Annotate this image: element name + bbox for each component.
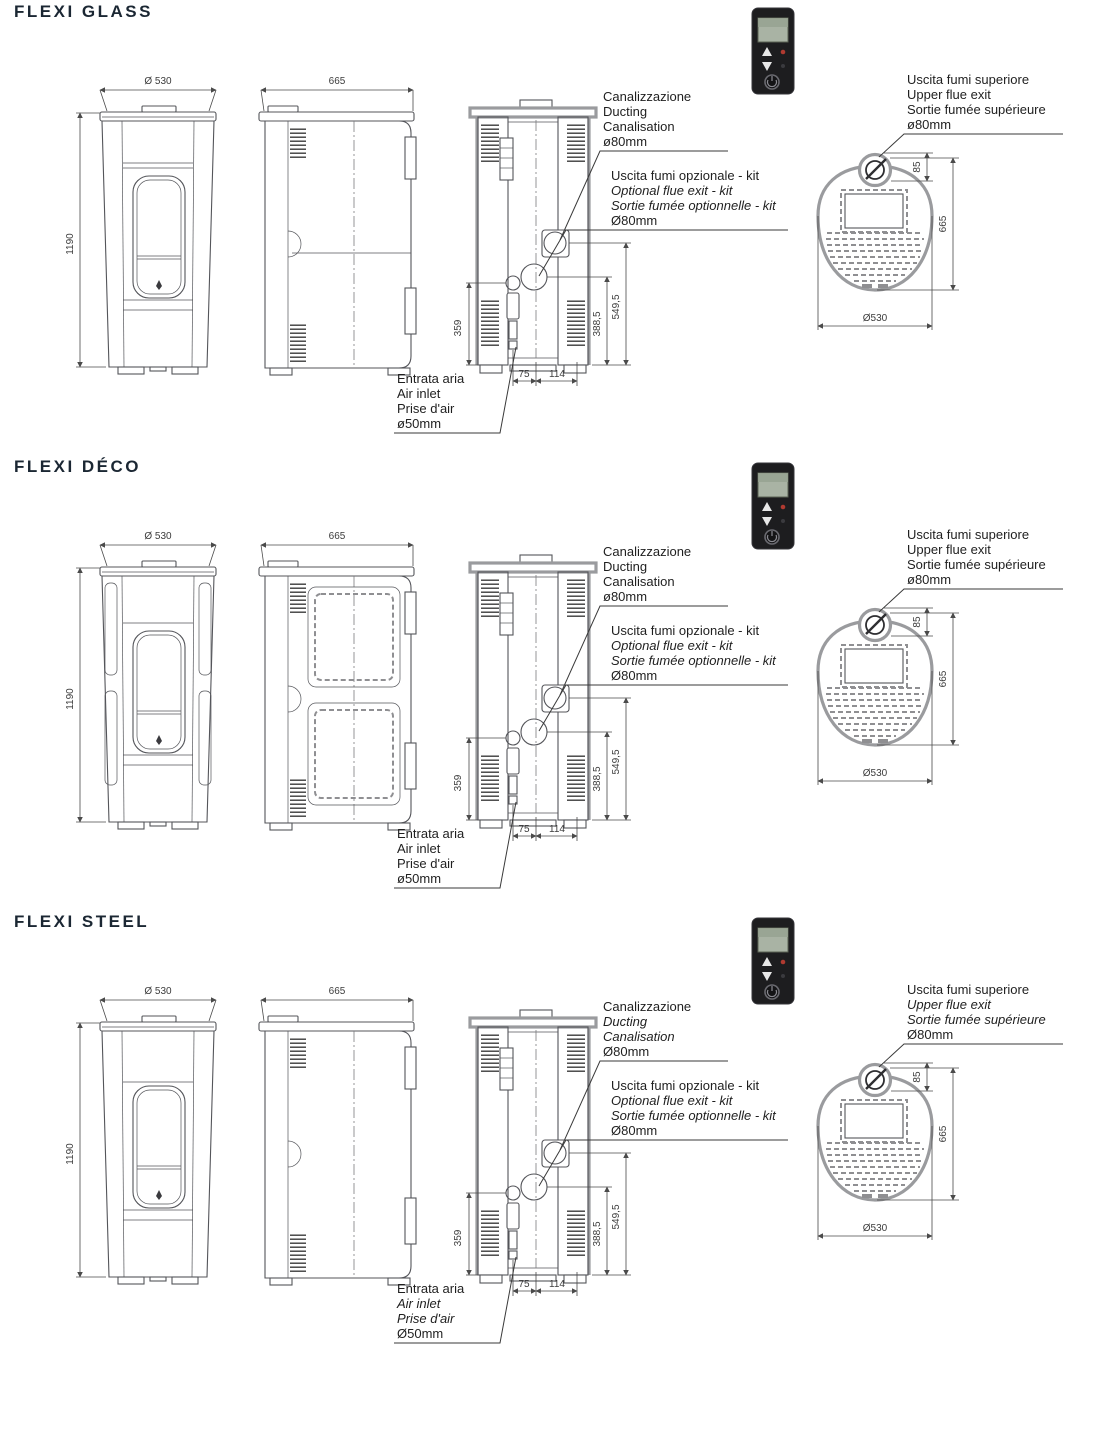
side-vent-grille-bottom bbox=[290, 324, 306, 362]
remote-control-image bbox=[752, 918, 794, 1004]
ducting-line-1: Canalizzazione bbox=[603, 544, 691, 559]
hopper-lid bbox=[845, 1104, 903, 1138]
upper-flue-leader-line bbox=[879, 589, 1063, 612]
back-vent-grille-bottom-left bbox=[481, 1208, 499, 1258]
air-inlet-diameter: ø50mm bbox=[397, 871, 441, 886]
back-dim-388: 388,5 bbox=[592, 311, 603, 336]
optional-flue-line-1: Uscita fumi opzionale - kit bbox=[611, 623, 759, 638]
air-inlet-line-3: Prise d'air bbox=[397, 401, 455, 416]
back-vent-grille-top-left bbox=[481, 1034, 499, 1074]
optional-flue-line-2: Optional flue exit - kit bbox=[611, 638, 734, 653]
front-view-drawing: Ø 530 1190 bbox=[65, 531, 216, 829]
upper-flue-line-1: Uscita fumi superiore bbox=[907, 527, 1029, 542]
back-dim-75: 75 bbox=[518, 824, 530, 835]
back-dim-359: 359 bbox=[453, 319, 464, 336]
front-view-drawing: Ø 530 1190 bbox=[65, 76, 216, 374]
air-inlet-line-1: Entrata aria bbox=[397, 1281, 465, 1296]
upper-flue-line-2: Upper flue exit bbox=[907, 87, 991, 102]
side-vent-grille-bottom bbox=[290, 779, 306, 817]
upper-flue-diameter: ø80mm bbox=[907, 117, 951, 132]
upper-flue-line-1: Uscita fumi superiore bbox=[907, 982, 1029, 997]
ducting-line-1: Canalizzazione bbox=[603, 999, 691, 1014]
ducting-line-2: Ducting bbox=[603, 104, 647, 119]
optional-flue-line-3: Sortie fumée optionnelle - kit bbox=[611, 1108, 777, 1123]
optional-flue-line-3: Sortie fumée optionnelle - kit bbox=[611, 653, 777, 668]
top-dim-85: 85 bbox=[912, 161, 923, 173]
optional-flue-diameter: Ø80mm bbox=[611, 668, 657, 683]
side-view-drawing: 665 bbox=[259, 76, 416, 375]
ducting-line-2: Ducting bbox=[603, 559, 647, 574]
back-dim-75: 75 bbox=[518, 1279, 530, 1290]
air-inlet-line-3: Prise d'air bbox=[397, 1311, 455, 1326]
back-dim-359: 359 bbox=[453, 1229, 464, 1246]
top-dim-530: Ø530 bbox=[863, 313, 888, 324]
optional-flue-line-2: Optional flue exit - kit bbox=[611, 183, 734, 198]
front-height-dim: 1190 bbox=[65, 688, 76, 710]
optional-flue-leader-line bbox=[539, 1140, 788, 1186]
air-inlet-line-2: Air inlet bbox=[397, 386, 441, 401]
upper-flue-line-2: Upper flue exit bbox=[907, 542, 991, 557]
annotation-upper-flue: Uscita fumi superiore Upper flue exit So… bbox=[879, 527, 1063, 612]
back-vent-grille-bottom-left bbox=[481, 753, 499, 803]
ducting-line-3: Canalisation bbox=[603, 1029, 675, 1044]
air-inlet-diameter: Ø50mm bbox=[397, 1326, 443, 1341]
back-vent-grille-bottom-right bbox=[567, 753, 585, 803]
back-vent-grille-top-right bbox=[567, 1034, 585, 1074]
optional-flue-diameter: Ø80mm bbox=[611, 213, 657, 228]
back-pipe-bracket bbox=[500, 1048, 513, 1090]
back-vent-grille-top-right bbox=[567, 579, 585, 619]
side-depth-dim: 665 bbox=[329, 986, 346, 997]
section-flexi-glass: FLEXI GLASS Ø 530 bbox=[0, 0, 1100, 452]
top-view-drawing: 85 665 Ø530 bbox=[818, 608, 959, 785]
air-inlet-line-1: Entrata aria bbox=[397, 826, 465, 841]
back-dim-388: 388,5 bbox=[592, 1221, 603, 1246]
side-depth-dim: 665 bbox=[329, 531, 346, 542]
remote-dark-button bbox=[781, 64, 785, 68]
section-flexi-deco: FLEXI DÉCO Ø 530 bbox=[0, 455, 1100, 907]
back-vent-grille-bottom-right bbox=[567, 298, 585, 348]
side-vent-grille-bottom bbox=[290, 1234, 306, 1272]
front-width-dim: Ø 530 bbox=[144, 986, 172, 997]
top-view-drawing: 85 665 Ø530 bbox=[818, 153, 959, 330]
remote-red-button bbox=[781, 960, 786, 965]
annotation-air-inlet: Entrata aria Air inlet Prise d'air ø50mm bbox=[394, 347, 516, 433]
datasheet-page: FLEXI GLASS Ø 530 bbox=[0, 0, 1100, 1452]
optional-flue-line-1: Uscita fumi opzionale - kit bbox=[611, 168, 759, 183]
hopper-lid bbox=[845, 194, 903, 228]
air-inlet-line-3: Prise d'air bbox=[397, 856, 455, 871]
upper-flue-line-3: Sortie fumée supérieure bbox=[907, 102, 1046, 117]
section-flexi-steel: FLEXI STEEL Ø 530 bbox=[0, 910, 1100, 1362]
top-dim-530: Ø530 bbox=[863, 1223, 888, 1234]
annotation-optional-flue: Uscita fumi opzionale - kit Optional flu… bbox=[539, 623, 788, 731]
annotation-upper-flue: Uscita fumi superiore Upper flue exit So… bbox=[879, 72, 1063, 157]
optional-flue-leader-line bbox=[539, 230, 788, 276]
upper-flue-line-3: Sortie fumée supérieure bbox=[907, 557, 1046, 572]
ducting-line-3: Canalisation bbox=[603, 574, 675, 589]
back-vent-grille-top-left bbox=[481, 124, 499, 164]
air-inlet-line-1: Entrata aria bbox=[397, 371, 465, 386]
optional-flue-line-2: Optional flue exit - kit bbox=[611, 1093, 734, 1108]
back-vent-grille-bottom-right bbox=[567, 1208, 585, 1258]
optional-flue-line-3: Sortie fumée optionnelle - kit bbox=[611, 198, 777, 213]
upper-flue-line-1: Uscita fumi superiore bbox=[907, 72, 1029, 87]
side-vent-grille-top bbox=[290, 1036, 306, 1070]
ducting-outlet bbox=[542, 230, 569, 257]
upper-flue-diameter: Ø80mm bbox=[907, 1027, 953, 1042]
upper-flue-diameter: ø80mm bbox=[907, 572, 951, 587]
air-inlet-line-2: Air inlet bbox=[396, 1296, 442, 1311]
back-dim-549: 549,5 bbox=[611, 749, 622, 774]
side-view-drawing: 665 bbox=[259, 986, 416, 1285]
back-dim-359: 359 bbox=[453, 774, 464, 791]
upper-flue-leader-line bbox=[879, 134, 1063, 157]
top-dim-665: 665 bbox=[938, 215, 949, 232]
back-dim-114: 114 bbox=[549, 824, 565, 835]
side-depth-dim: 665 bbox=[329, 76, 346, 87]
front-width-dim: Ø 530 bbox=[144, 76, 172, 87]
ducting-diameter: ø80mm bbox=[603, 134, 647, 149]
back-vent-grille-top-left bbox=[481, 579, 499, 619]
back-pipe-bracket bbox=[500, 138, 513, 180]
upper-flue-leader-line bbox=[879, 1044, 1063, 1067]
technical-drawing: Ø 530 1190 bbox=[0, 455, 1100, 907]
remote-dark-button bbox=[781, 519, 785, 523]
annotation-upper-flue: Uscita fumi superiore Upper flue exit So… bbox=[879, 982, 1063, 1067]
back-dim-549: 549,5 bbox=[611, 294, 622, 319]
top-dim-530: Ø530 bbox=[863, 768, 888, 779]
side-vent-grille-top bbox=[290, 126, 306, 160]
hopper-lid bbox=[845, 649, 903, 683]
back-vent-grille-top-right bbox=[567, 124, 585, 164]
air-inlet-diameter: ø50mm bbox=[397, 416, 441, 431]
remote-dark-button bbox=[781, 974, 785, 978]
optional-flue-outlet bbox=[521, 264, 547, 290]
top-dim-665: 665 bbox=[938, 670, 949, 687]
front-width-dim: Ø 530 bbox=[144, 531, 172, 542]
ducting-line-3: Canalisation bbox=[603, 119, 675, 134]
top-view-drawing: 85 665 Ø530 bbox=[818, 1063, 959, 1240]
annotation-air-inlet: Entrata aria Air inlet Prise d'air Ø50mm bbox=[394, 1257, 516, 1343]
side-vent-grille-top bbox=[290, 581, 306, 615]
ducting-outlet bbox=[542, 1140, 569, 1167]
upper-flue-line-3: Sortie fumée supérieure bbox=[907, 1012, 1046, 1027]
annotation-air-inlet: Entrata aria Air inlet Prise d'air ø50mm bbox=[394, 802, 516, 888]
optional-flue-outlet bbox=[521, 719, 547, 745]
back-dim-549: 549,5 bbox=[611, 1204, 622, 1229]
remote-control-image bbox=[752, 8, 794, 94]
ducting-diameter: ø80mm bbox=[603, 589, 647, 604]
remote-red-button bbox=[781, 50, 786, 55]
annotation-optional-flue: Uscita fumi opzionale - kit Optional flu… bbox=[539, 1078, 788, 1186]
front-height-dim: 1190 bbox=[65, 1143, 76, 1165]
upper-flue-line-2: Upper flue exit bbox=[907, 997, 992, 1012]
back-vent-grille-bottom-left bbox=[481, 298, 499, 348]
back-pipe-bracket bbox=[500, 593, 513, 635]
back-dim-114: 114 bbox=[549, 369, 565, 380]
air-inlet-pipe bbox=[507, 748, 519, 774]
ducting-line-1: Canalizzazione bbox=[603, 89, 691, 104]
optional-flue-line-1: Uscita fumi opzionale - kit bbox=[611, 1078, 759, 1093]
ducting-line-2: Ducting bbox=[603, 1014, 648, 1029]
air-inlet-line-2: Air inlet bbox=[397, 841, 441, 856]
annotation-optional-flue: Uscita fumi opzionale - kit Optional flu… bbox=[539, 168, 788, 276]
optional-flue-diameter: Ø80mm bbox=[611, 1123, 657, 1138]
remote-red-button bbox=[781, 505, 786, 510]
air-inlet-pipe bbox=[507, 1203, 519, 1229]
back-dim-114: 114 bbox=[549, 1279, 565, 1290]
ducting-outlet bbox=[542, 685, 569, 712]
top-dim-85: 85 bbox=[912, 1071, 923, 1083]
back-dim-75: 75 bbox=[518, 369, 530, 380]
top-dim-85: 85 bbox=[912, 616, 923, 628]
side-view-drawing: 665 bbox=[259, 531, 416, 830]
top-dim-665: 665 bbox=[938, 1125, 949, 1142]
optional-flue-outlet bbox=[521, 1174, 547, 1200]
air-inlet-pipe bbox=[507, 293, 519, 319]
ducting-diameter: Ø80mm bbox=[603, 1044, 649, 1059]
optional-flue-leader-line bbox=[539, 685, 788, 731]
back-dim-388: 388,5 bbox=[592, 766, 603, 791]
front-view-drawing: Ø 530 1190 bbox=[65, 986, 216, 1284]
technical-drawing: Ø 530 1190 bbox=[0, 910, 1100, 1362]
remote-control-image bbox=[752, 463, 794, 549]
front-height-dim: 1190 bbox=[65, 233, 76, 255]
technical-drawing: Ø 530 1190 bbox=[0, 0, 1100, 452]
